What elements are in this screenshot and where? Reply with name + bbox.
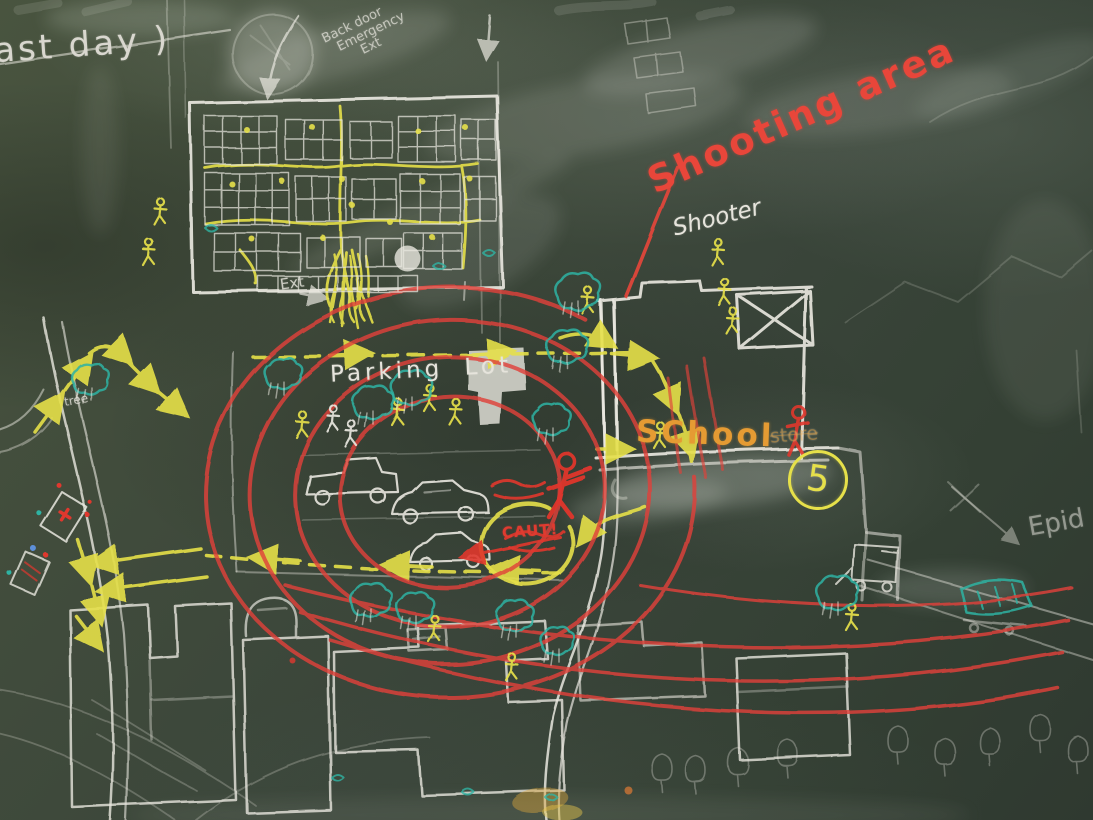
tree-outline [888,726,908,764]
tree-outline [652,754,672,792]
sedan-icon [410,533,490,570]
tree-outline [980,728,1000,766]
road-center [545,300,606,820]
person-figure-white [346,421,358,447]
person-figure [712,239,724,265]
person-figure [719,279,731,305]
tree-icon [533,404,571,435]
tree-icon [264,358,302,389]
student-dot [309,124,315,130]
student-dot [415,128,421,134]
person-figure [450,399,462,425]
classroom-grid [214,233,300,271]
staging-number: 5 [804,460,832,501]
tree-icon [396,592,434,623]
classroom-grid [205,173,289,225]
student-dot [387,219,393,225]
student-dot [339,176,345,182]
shrub-mark [332,775,344,781]
student-dot [467,176,473,182]
student-dot [419,178,425,184]
tree-outline [1068,736,1088,774]
tree-trunk [544,649,559,665]
person-figure [296,411,308,437]
tree-icon [71,363,109,394]
school-label: SChool [635,416,774,453]
light-circle [395,246,421,272]
shrub-mark [205,225,217,231]
red-scribble [492,481,545,499]
bottom-buildings [70,598,850,813]
pickup-truck-icon [306,458,398,504]
chalk-drawing [0,0,1093,820]
classroom-grid [296,177,346,221]
sedan-icon [392,480,488,523]
student-dot [229,181,235,187]
tree-outline [1030,714,1050,752]
red-cross-icon [57,507,74,524]
person-figure [143,239,155,265]
student-dot [279,178,285,184]
building-exit-label: Ext [279,274,305,293]
tree-outline [686,756,706,794]
classroom-grid [350,122,392,158]
person-figure [846,604,858,630]
chalkboard-incident-map: ast day ) Back door Emergency Ext Shooti… [0,0,1093,820]
tree-outline [728,748,748,786]
parking-lot-outline [232,352,237,572]
tree-outline [935,738,955,776]
person-figure-white [327,405,339,431]
student-dot [244,127,250,133]
student-dot [319,234,325,240]
classroom-grid [205,116,277,164]
person-figure [506,654,518,680]
student-dot [429,234,435,240]
student-dot [463,125,469,131]
person-figure [154,198,166,224]
student-dot [249,236,255,242]
faded-store-label: store [769,424,818,447]
police-vehicle-icon [4,540,54,595]
crossed-window [737,291,813,349]
student-dot [349,202,355,208]
